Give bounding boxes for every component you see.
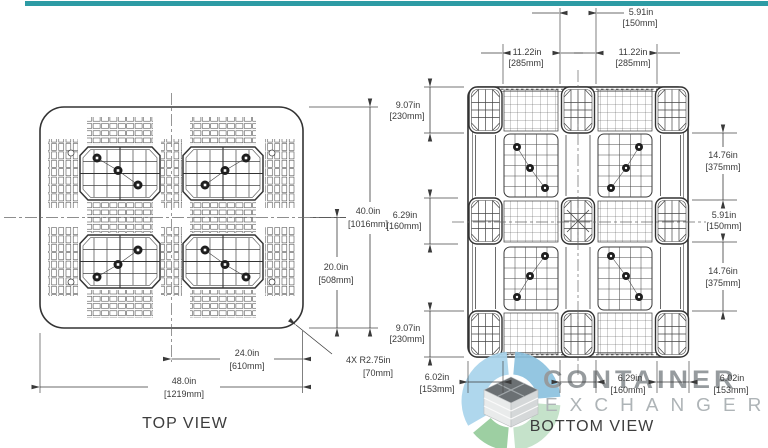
dim-bv-topleft-mm: [285mm] xyxy=(508,58,543,68)
dim-bv-righttop-in: 14.76in xyxy=(708,150,738,160)
dim-top-halfheight-mm: [508mm] xyxy=(318,275,353,285)
watermark-exchanger-text: EXCHANGER xyxy=(545,396,768,417)
dim-bv-rightmid-in: 5.91in xyxy=(712,210,737,220)
dim-bv-topcenter-mm: [150mm] xyxy=(622,18,657,28)
dim-top-halfwidth-in: 24.0in xyxy=(235,348,260,358)
technical-drawing-page: CONTAINER EXCHANGER xyxy=(0,0,768,448)
dim-bv-rightmid-mm: [150mm] xyxy=(706,221,741,231)
dim-top-halfheight-in: 20.0in xyxy=(324,262,349,272)
bottom-view-drawing xyxy=(468,87,689,357)
dim-bv-leftmid-mm: [160mm] xyxy=(386,221,421,231)
extension-lines xyxy=(40,8,737,393)
dim-bv-lefttop-mm: [230mm] xyxy=(389,111,424,121)
watermark-container-text: CONTAINER xyxy=(543,366,768,395)
dim-bv-topright-mm: [285mm] xyxy=(615,58,650,68)
watermark-logo: CONTAINER EXCHANGER xyxy=(450,355,768,448)
dim-bv-topright-in: 11.22in xyxy=(619,47,648,57)
top-accent-bar xyxy=(25,1,768,6)
dim-top-radius-in: 4X R2.75in xyxy=(346,355,391,365)
dim-bv-rightbottom-in: 14.76in xyxy=(708,266,738,276)
centerlines xyxy=(4,70,706,375)
dim-bv-leftbottom-in: 9.07in xyxy=(396,323,421,333)
dim-bv-topcenter-in: 5.91in xyxy=(629,7,654,17)
crate-icon xyxy=(484,377,538,427)
dim-top-halfwidth-mm: [610mm] xyxy=(229,361,264,371)
dimension-lines xyxy=(40,13,723,387)
dim-top-radius-mm: [70mm] xyxy=(363,368,393,378)
dim-bv-righttop-mm: [375mm] xyxy=(705,162,740,172)
dim-top-height-in: 40.0in xyxy=(356,206,381,216)
top-view-label: TOP VIEW xyxy=(142,415,228,432)
dim-bv-bottomleft-in: 6.02in xyxy=(425,372,450,382)
dim-bv-rightbottom-mm: [375mm] xyxy=(705,278,740,288)
dim-top-width-in: 48.0in xyxy=(172,376,197,386)
dim-top-height-mm: [1016mm] xyxy=(348,219,388,229)
top-view-drawing xyxy=(40,107,303,328)
dim-bv-topleft-in: 11.22in xyxy=(513,47,542,57)
dim-bv-leftbottom-mm: [230mm] xyxy=(389,334,424,344)
dim-bv-leftmid-in: 6.29in xyxy=(393,210,418,220)
dim-top-width-mm: [1219mm] xyxy=(164,389,204,399)
dim-bv-lefttop-in: 9.07in xyxy=(396,100,421,110)
